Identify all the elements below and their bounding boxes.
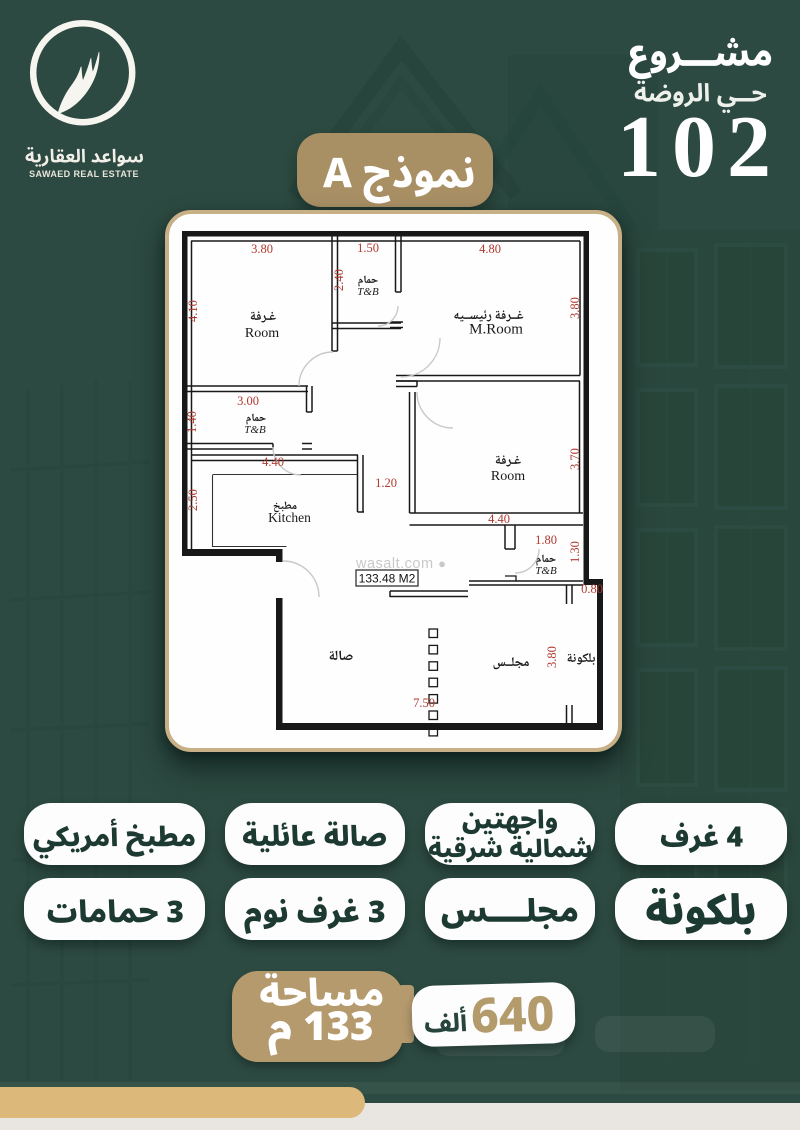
- svg-text:M.Room: M.Room: [469, 322, 523, 338]
- svg-text:Room: Room: [491, 469, 525, 484]
- svg-text:4.40: 4.40: [262, 455, 284, 469]
- svg-text:2.50: 2.50: [186, 489, 200, 511]
- svg-text:3.80: 3.80: [251, 242, 273, 256]
- svg-text:3.70: 3.70: [568, 448, 582, 470]
- svg-text:0.80: 0.80: [581, 582, 603, 596]
- svg-text:3.00: 3.00: [237, 394, 259, 408]
- svg-text:7.50: 7.50: [413, 696, 435, 710]
- svg-text:T&B: T&B: [535, 565, 557, 577]
- svg-text:1.80: 1.80: [535, 533, 557, 547]
- svg-text:1.40: 1.40: [185, 411, 199, 433]
- svg-text:Kitchen: Kitchen: [268, 510, 311, 525]
- svg-text:4.40: 4.40: [488, 512, 510, 526]
- svg-text:3.80: 3.80: [545, 646, 559, 668]
- svg-text:T&B: T&B: [244, 424, 266, 436]
- svg-text:133.48 M2: 133.48 M2: [359, 572, 416, 586]
- svg-text:T&B: T&B: [357, 286, 379, 298]
- svg-text:1.30: 1.30: [568, 541, 582, 563]
- svg-text:Room: Room: [245, 326, 279, 341]
- svg-text:2.40: 2.40: [332, 269, 346, 291]
- svg-text:4.80: 4.80: [479, 242, 501, 256]
- svg-text:1.50: 1.50: [357, 241, 379, 255]
- svg-text:4.10: 4.10: [186, 300, 200, 322]
- svg-text:1.20: 1.20: [375, 476, 397, 490]
- svg-text:3.80: 3.80: [568, 297, 582, 319]
